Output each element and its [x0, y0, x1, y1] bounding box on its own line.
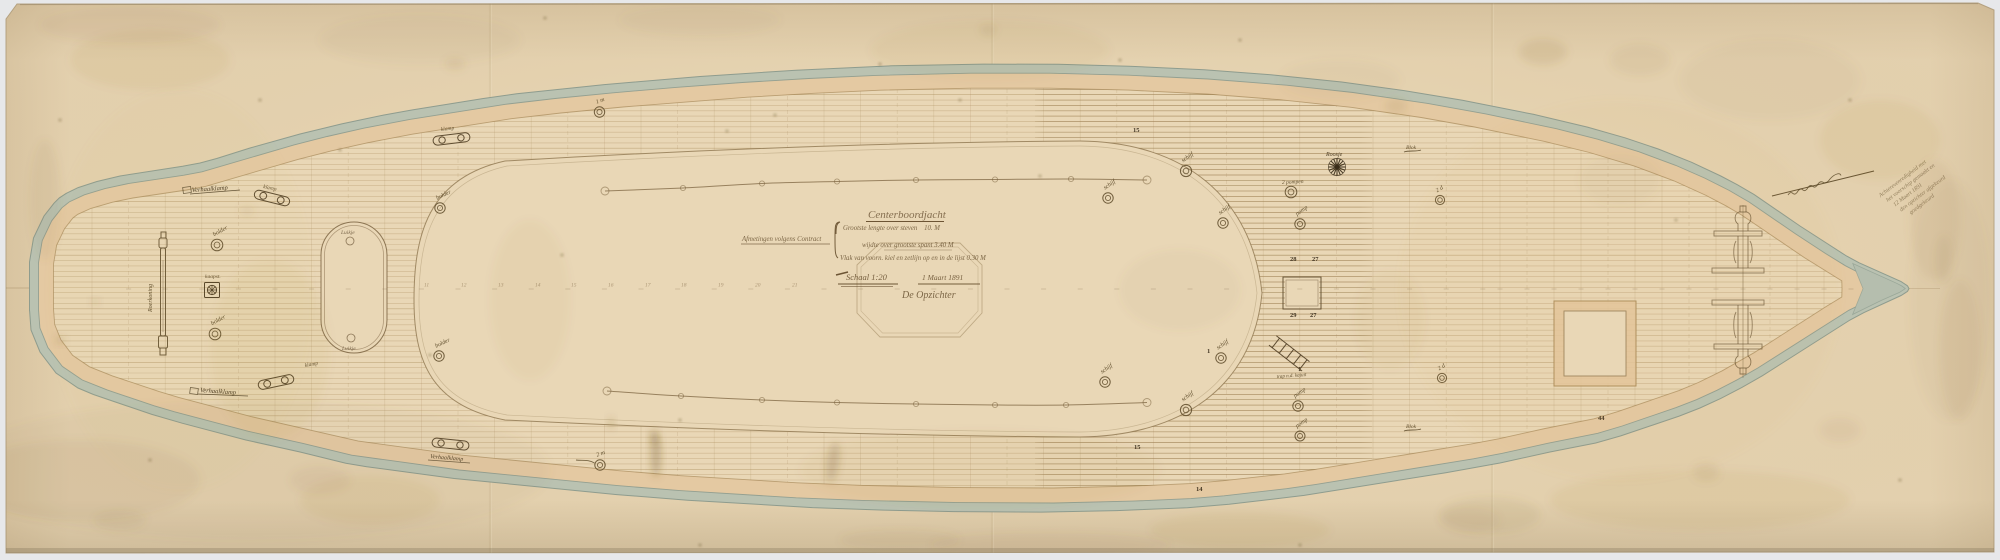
svg-text:21: 21 — [792, 283, 798, 289]
svg-text:Afmetingen volgens Contract: Afmetingen volgens Contract — [741, 236, 822, 243]
svg-text:18: 18 — [681, 283, 687, 289]
svg-text:15: 15 — [1133, 127, 1140, 134]
svg-text:2 pompen: 2 pompen — [1282, 179, 1304, 186]
svg-text:14: 14 — [1196, 486, 1203, 493]
svg-text:De Opzichter: De Opzichter — [901, 290, 956, 301]
svg-text:Schaal 1:20: Schaal 1:20 — [846, 272, 888, 282]
svg-text:20: 20 — [755, 283, 761, 289]
svg-text:28: 28 — [1290, 256, 1297, 263]
svg-text:Luikje: Luikje — [340, 230, 355, 236]
svg-text:wijdte over grootste spant 3.: wijdte over grootste spant 3.40 M — [862, 242, 954, 249]
svg-text:15: 15 — [571, 283, 577, 289]
svg-text:Roosje: Roosje — [1325, 152, 1343, 158]
svg-text:16: 16 — [608, 283, 614, 289]
svg-text:Grootste lengte over steven: Grootste lengte over steven 10. M — [843, 225, 940, 232]
svg-text:11: 11 — [424, 283, 429, 289]
svg-text:29: 29 — [1290, 312, 1297, 319]
svg-text:Vlak van voorn. kiel en zetli: Vlak van voorn. kiel en zetlijn op en in… — [840, 255, 986, 262]
svg-text:Centerboordjacht: Centerboordjacht — [868, 209, 947, 221]
svg-text:1: 1 — [1207, 348, 1210, 355]
svg-text:27: 27 — [1310, 312, 1317, 319]
svg-text:12: 12 — [461, 283, 467, 289]
svg-text:17: 17 — [645, 283, 651, 289]
svg-text:1 Maart 1891: 1 Maart 1891 — [922, 273, 963, 282]
svg-text:Luikje: Luikje — [341, 346, 356, 352]
svg-text:27: 27 — [1312, 256, 1319, 263]
svg-text:Blok: Blok — [1406, 424, 1417, 430]
svg-text:19: 19 — [718, 283, 724, 289]
svg-text:Blok: Blok — [1406, 145, 1417, 151]
